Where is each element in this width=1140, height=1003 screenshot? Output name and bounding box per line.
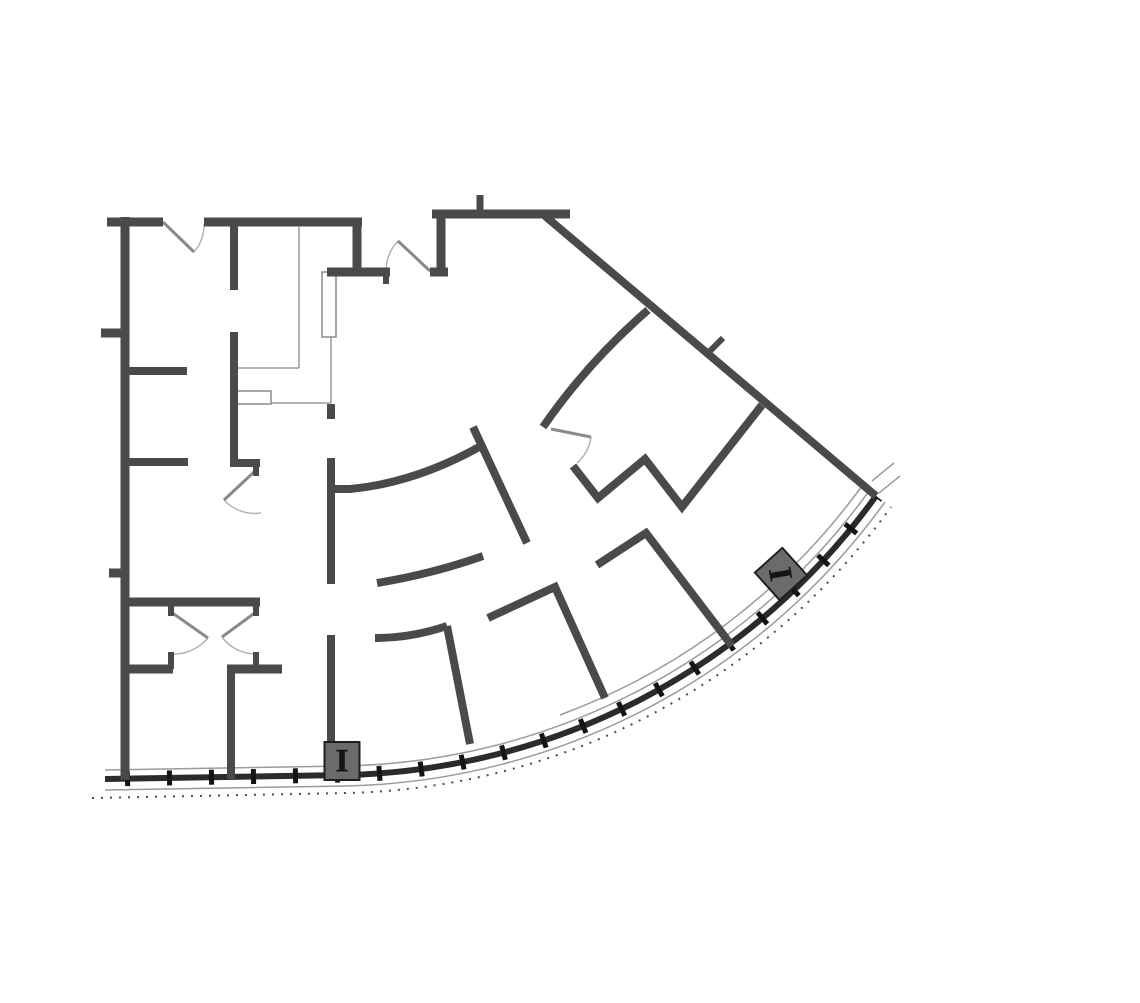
facade-corner-extension2 — [879, 476, 900, 493]
door-swing-arc — [222, 637, 256, 654]
counter-fixture — [322, 272, 336, 337]
curved-wall — [375, 626, 447, 638]
curved-wall — [350, 446, 481, 489]
door-swing-arc — [577, 437, 591, 463]
counter-fixture — [237, 391, 271, 404]
wall-segment — [447, 626, 470, 744]
wall-segment — [709, 338, 723, 352]
facade-glass-line-inner2 — [560, 486, 862, 715]
floorplan-page: II — [0, 0, 1140, 1003]
wall-segment — [473, 427, 527, 543]
door-swing-arc — [224, 500, 261, 513]
floor-plan-drawing: II — [0, 0, 1140, 1003]
facade-glass-line-outer — [105, 502, 885, 790]
facade-main-wall — [105, 496, 876, 779]
door-leaf — [163, 222, 194, 252]
wall-polyline — [597, 533, 732, 646]
column-label: I — [335, 745, 349, 780]
curved-wall — [377, 556, 483, 583]
door-leaf — [224, 472, 254, 500]
wall-segment — [545, 216, 876, 496]
door-leaf — [551, 429, 591, 437]
facade-glass-line-inner — [105, 491, 869, 770]
door-leaf — [398, 241, 430, 271]
door-leaf — [171, 612, 208, 638]
wall-polyline — [488, 587, 605, 698]
door-swing-arc — [194, 224, 204, 252]
facade-corner-extension1 — [872, 463, 894, 481]
wall-polyline — [573, 405, 762, 507]
door-swing-arc — [172, 638, 208, 654]
door-swing-arc — [386, 241, 398, 271]
facade-mullion-ticks — [105, 496, 876, 779]
curved-wall — [543, 310, 648, 427]
door-leaf — [222, 612, 256, 637]
